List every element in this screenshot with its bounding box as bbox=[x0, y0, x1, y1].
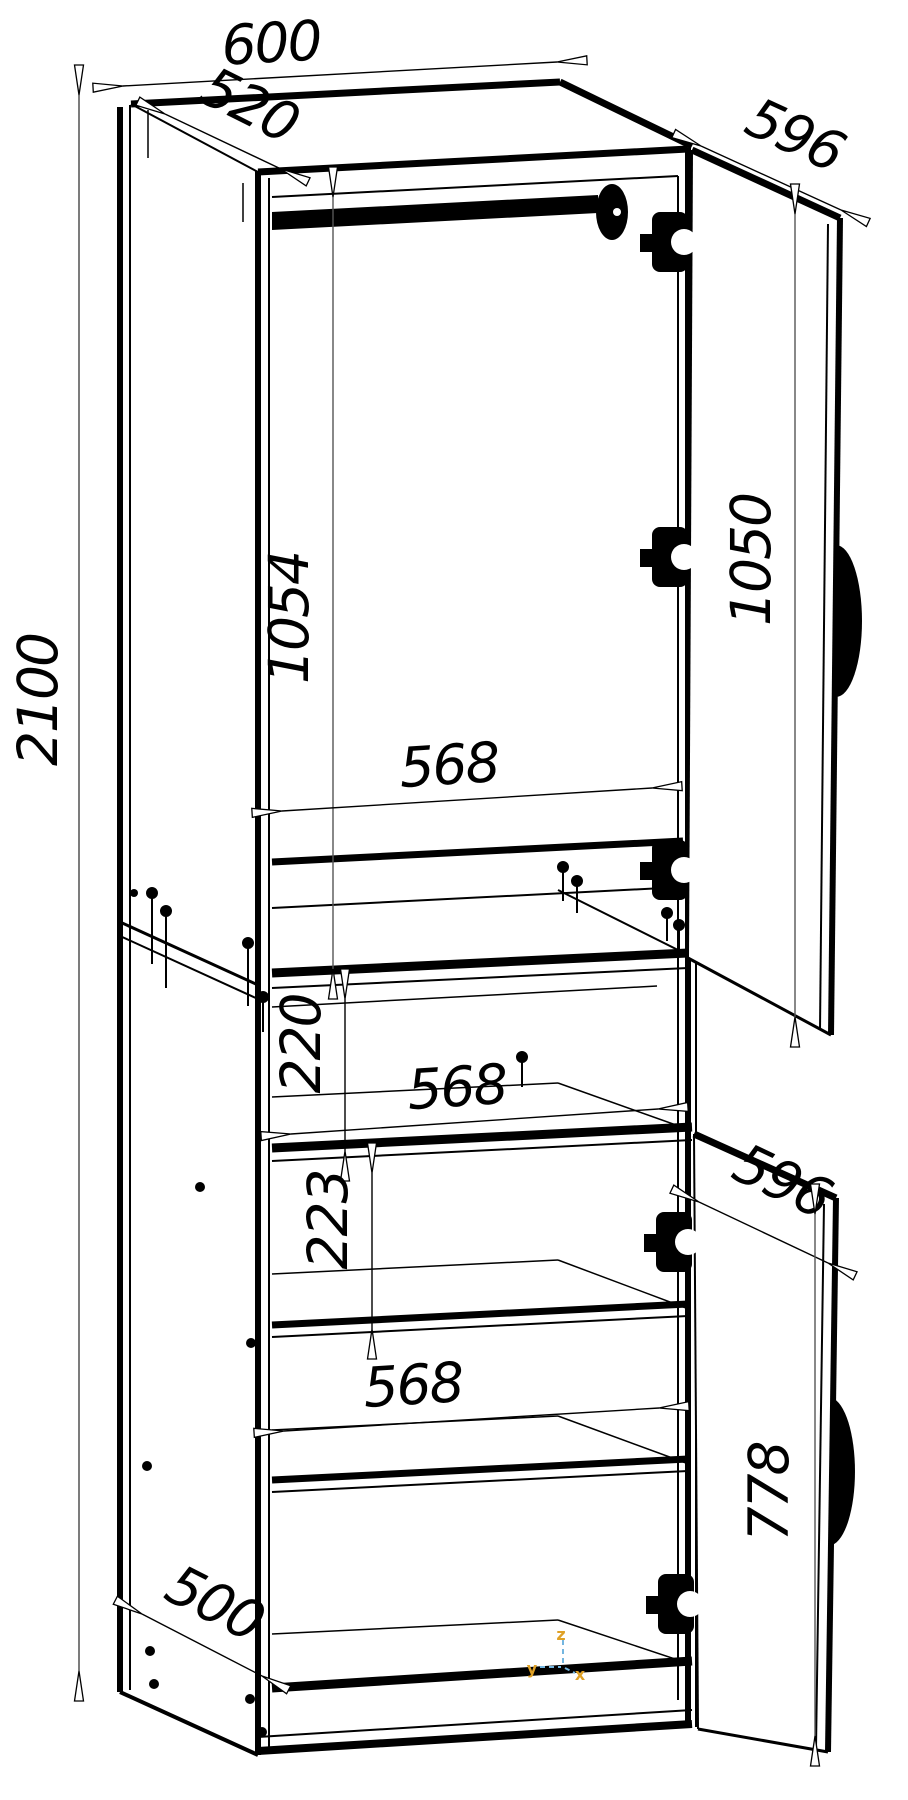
dim-label-niche-interior-width: 568 bbox=[405, 1052, 508, 1122]
dim-label-lower-door-height: 778 bbox=[737, 1443, 801, 1542]
axis-y-label: y bbox=[527, 1659, 538, 1678]
drawing-canvas: 600 520 596 2100 1054 1050 568 220 568 2… bbox=[0, 0, 908, 1800]
left-side-panel-face bbox=[120, 104, 258, 1755]
dim-label-upper-interior-height: 1054 bbox=[257, 552, 321, 684]
hanging-rod-flange-hole bbox=[613, 208, 621, 216]
dim-label-niche-height: 220 bbox=[269, 995, 333, 1094]
dim-label-overall-height: 2100 bbox=[6, 634, 70, 766]
dim-label-lower-interior-width: 568 bbox=[361, 1350, 464, 1420]
dim-label-lower-shelf-spacing: 223 bbox=[296, 1171, 360, 1270]
hanging-rod-flange bbox=[596, 184, 628, 240]
axis-z-label: z bbox=[556, 1625, 565, 1644]
axis-x-label: x bbox=[575, 1665, 586, 1684]
dim-label-upper-interior-width: 568 bbox=[397, 730, 500, 800]
dim-label-upper-door-height: 1050 bbox=[719, 494, 783, 626]
wardrobe-technical-drawing: 600 520 596 2100 1054 1050 568 220 568 2… bbox=[0, 0, 908, 1800]
